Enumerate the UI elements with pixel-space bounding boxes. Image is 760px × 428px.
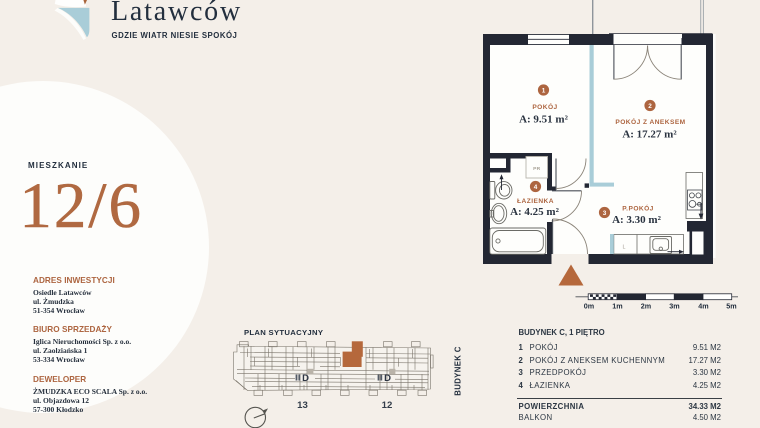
svg-text:2m: 2m [641, 302, 651, 311]
svg-text:A: 17.27 m²: A: 17.27 m² [622, 129, 677, 141]
svg-text:4m: 4m [698, 302, 708, 311]
svg-text:A: 9.51 m²: A: 9.51 m² [519, 113, 569, 125]
svg-text:13: 13 [297, 400, 308, 411]
svg-text:3: 3 [603, 210, 607, 217]
svg-text:A: 3.30 m²: A: 3.30 m² [612, 214, 662, 226]
svg-text:1m: 1m [612, 302, 622, 311]
svg-text:4: 4 [534, 184, 538, 191]
svg-text:D: D [302, 373, 309, 384]
svg-text:P.POKÓJ: P.POKÓJ [622, 203, 654, 212]
svg-text:1: 1 [542, 87, 546, 94]
svg-text:L: L [623, 245, 626, 251]
svg-text:POKÓJ Z ANEKSEM: POKÓJ Z ANEKSEM [615, 117, 685, 126]
svg-text:5m: 5m [726, 302, 736, 311]
svg-text:2: 2 [648, 103, 652, 110]
svg-text:3m: 3m [669, 302, 679, 311]
svg-text:PR: PR [533, 166, 541, 172]
svg-text:ŁAZIENKA: ŁAZIENKA [517, 198, 554, 205]
svg-text:POKÓJ: POKÓJ [532, 102, 557, 111]
svg-text:12: 12 [382, 400, 393, 411]
svg-text:D: D [384, 373, 391, 384]
svg-text:0m: 0m [584, 302, 594, 311]
svg-text:A: 4.25 m²: A: 4.25 m² [510, 206, 560, 218]
